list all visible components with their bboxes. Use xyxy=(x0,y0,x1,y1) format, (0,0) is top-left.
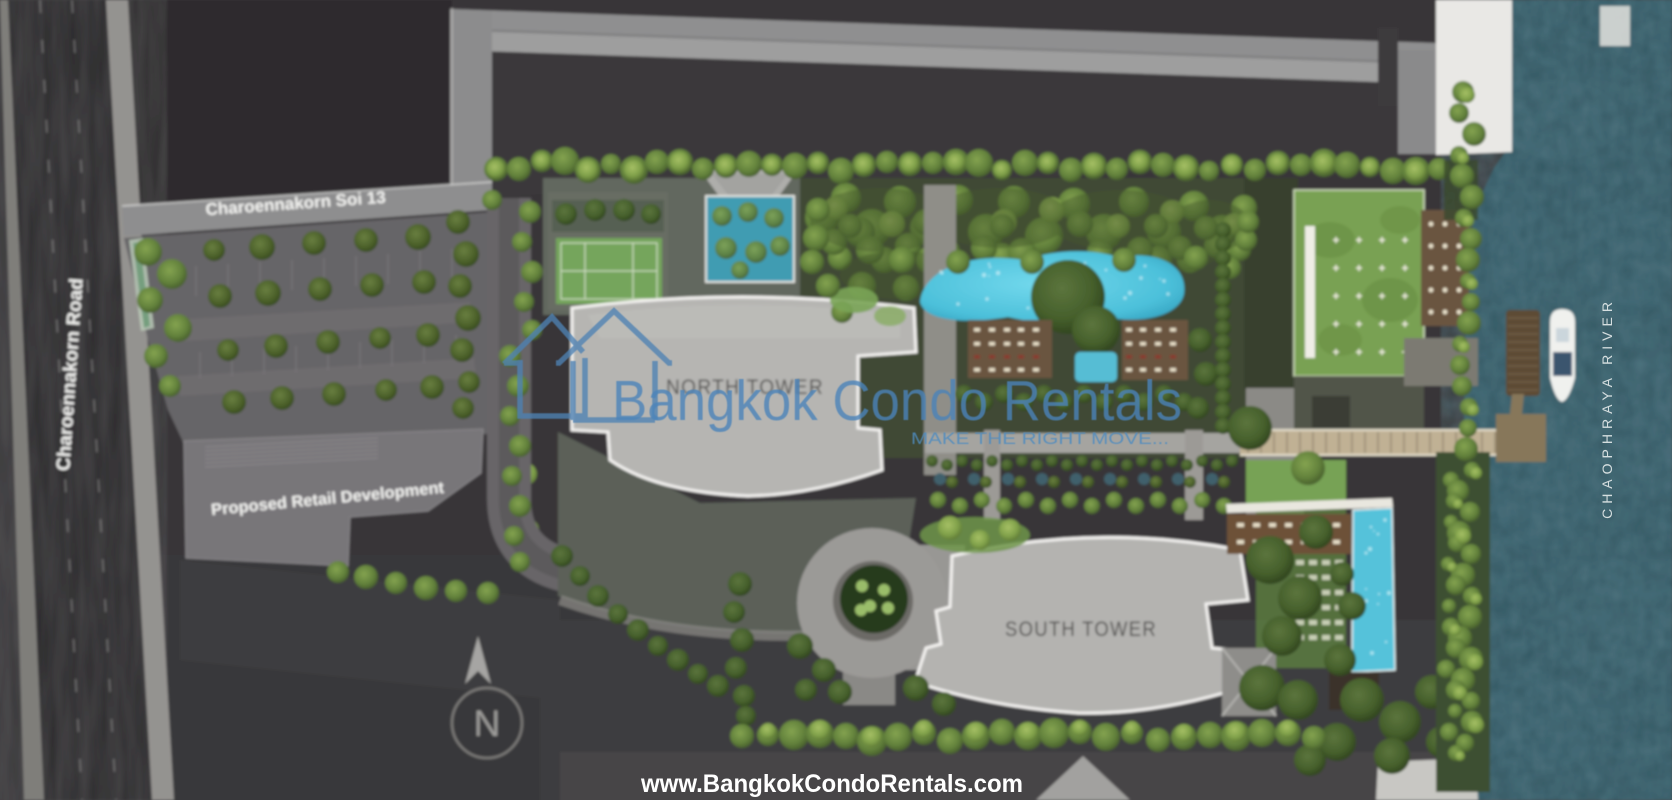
svg-text:SOUTH TOWER: SOUTH TOWER xyxy=(1005,618,1157,641)
svg-text:www.BangkokCondoRentals.com: www.BangkokCondoRentals.com xyxy=(640,770,1023,798)
svg-text:MAKE THE RIGHT MOVE...: MAKE THE RIGHT MOVE... xyxy=(911,429,1169,448)
svg-text:N: N xyxy=(474,703,501,744)
svg-text:Bangkok Condo Rentals: Bangkok Condo Rentals xyxy=(612,369,1182,433)
svg-text:CHAOPHRAYA RIVER: CHAOPHRAYA RIVER xyxy=(1599,297,1615,519)
